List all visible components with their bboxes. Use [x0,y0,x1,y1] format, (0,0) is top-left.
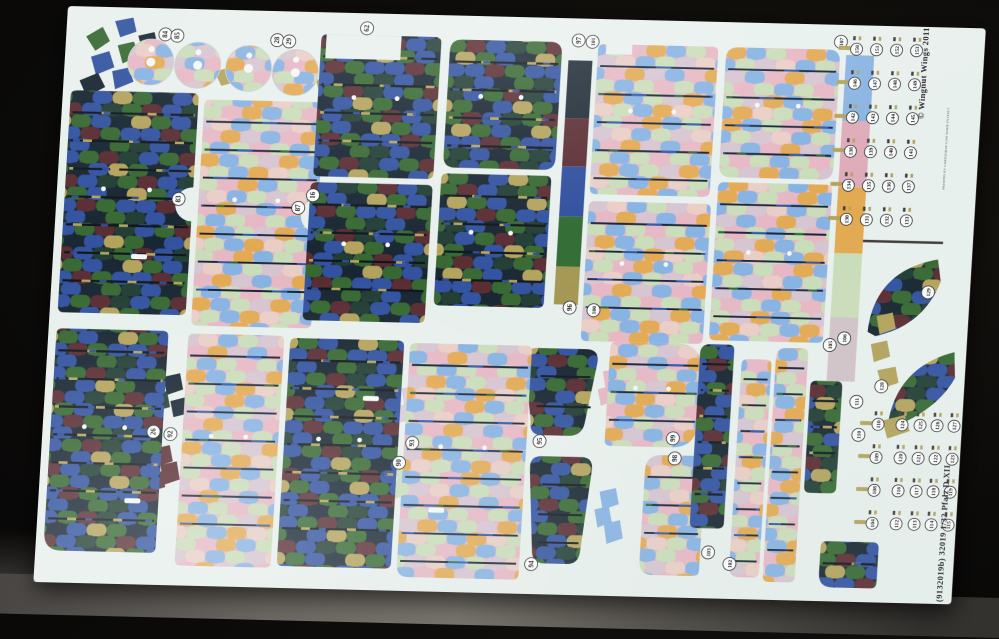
glare-top [33,6,986,604]
decal-sheet: 8485282962971019610010783871626929390959… [33,6,986,604]
photo-of-decal-sheet: { "photo": { "subject": "WWI five-colour… [0,0,999,610]
